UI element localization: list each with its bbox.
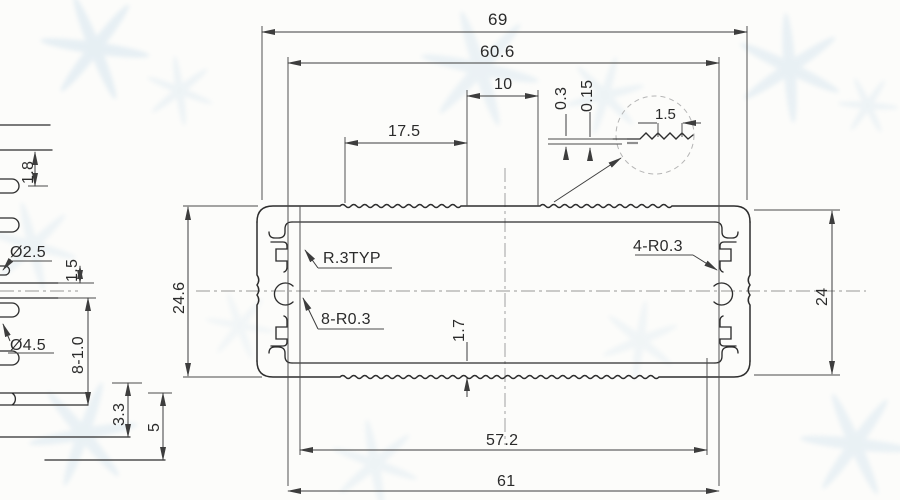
dim-groove-span: 60.6 <box>480 42 515 61</box>
dim-side-edge-margin: 5 <box>146 423 163 432</box>
label-fillet-slots: 8-R0.3 <box>321 311 371 328</box>
dim-base-width: 61 <box>497 473 515 490</box>
extrusion-profile-drawing: 69 60.6 10 17.5 0.3 0.15 1.5 24.6 24 1.7… <box>0 0 900 500</box>
dim-side-hole-row: 8-1.0 <box>70 336 87 374</box>
label-fillet-typ: R.3TYP <box>323 250 381 267</box>
dim-side-step: 1.8 <box>20 161 37 184</box>
detail-knurl-wave <box>613 133 693 139</box>
dimension-labels: 69 60.6 10 17.5 0.3 0.15 1.5 24.6 24 1.7… <box>10 10 831 490</box>
profile-top-knurled-edge <box>257 205 750 223</box>
dim-flat-width: 10 <box>494 76 512 93</box>
dim-height-body: 24 <box>814 288 831 306</box>
dim-side-gap: 1.5 <box>64 259 81 282</box>
dim-height-overall: 24.6 <box>171 282 188 314</box>
dim-inner-span: 57.2 <box>486 432 518 449</box>
extension-lines <box>8 26 840 486</box>
dim-wall-thickness: 1.7 <box>451 319 468 342</box>
dim-side-hole-small: Ø2.5 <box>10 244 46 261</box>
dim-overall-width: 69 <box>488 10 508 29</box>
dim-flat-offset: 17.5 <box>388 123 420 140</box>
drawing-sheet: 69 60.6 10 17.5 0.3 0.15 1.5 24.6 24 1.7… <box>0 0 900 500</box>
left-screw-boss <box>269 222 293 363</box>
centerlines <box>0 168 866 445</box>
dim-side-hole-large: Ø4.5 <box>10 337 46 354</box>
leader-fillet-tabs <box>693 255 717 270</box>
detail-leader-arrow <box>554 158 621 202</box>
main-profile <box>257 205 750 379</box>
profile-left-wall <box>257 222 259 361</box>
dim-knurl-depth: 0.3 <box>553 87 570 110</box>
dim-knurl-half: 0.15 <box>579 80 596 112</box>
leader-fillet-typ <box>305 250 318 268</box>
label-fillet-tabs: 4-R0.3 <box>633 238 683 255</box>
dim-side-offset: 3.3 <box>111 403 128 426</box>
leader-fillet-slots <box>303 298 318 329</box>
right-screw-boss <box>714 222 738 363</box>
leader-hole-large <box>3 324 10 341</box>
profile-right-wall <box>748 222 750 361</box>
dim-knurl-pitch: 1.5 <box>655 106 676 123</box>
